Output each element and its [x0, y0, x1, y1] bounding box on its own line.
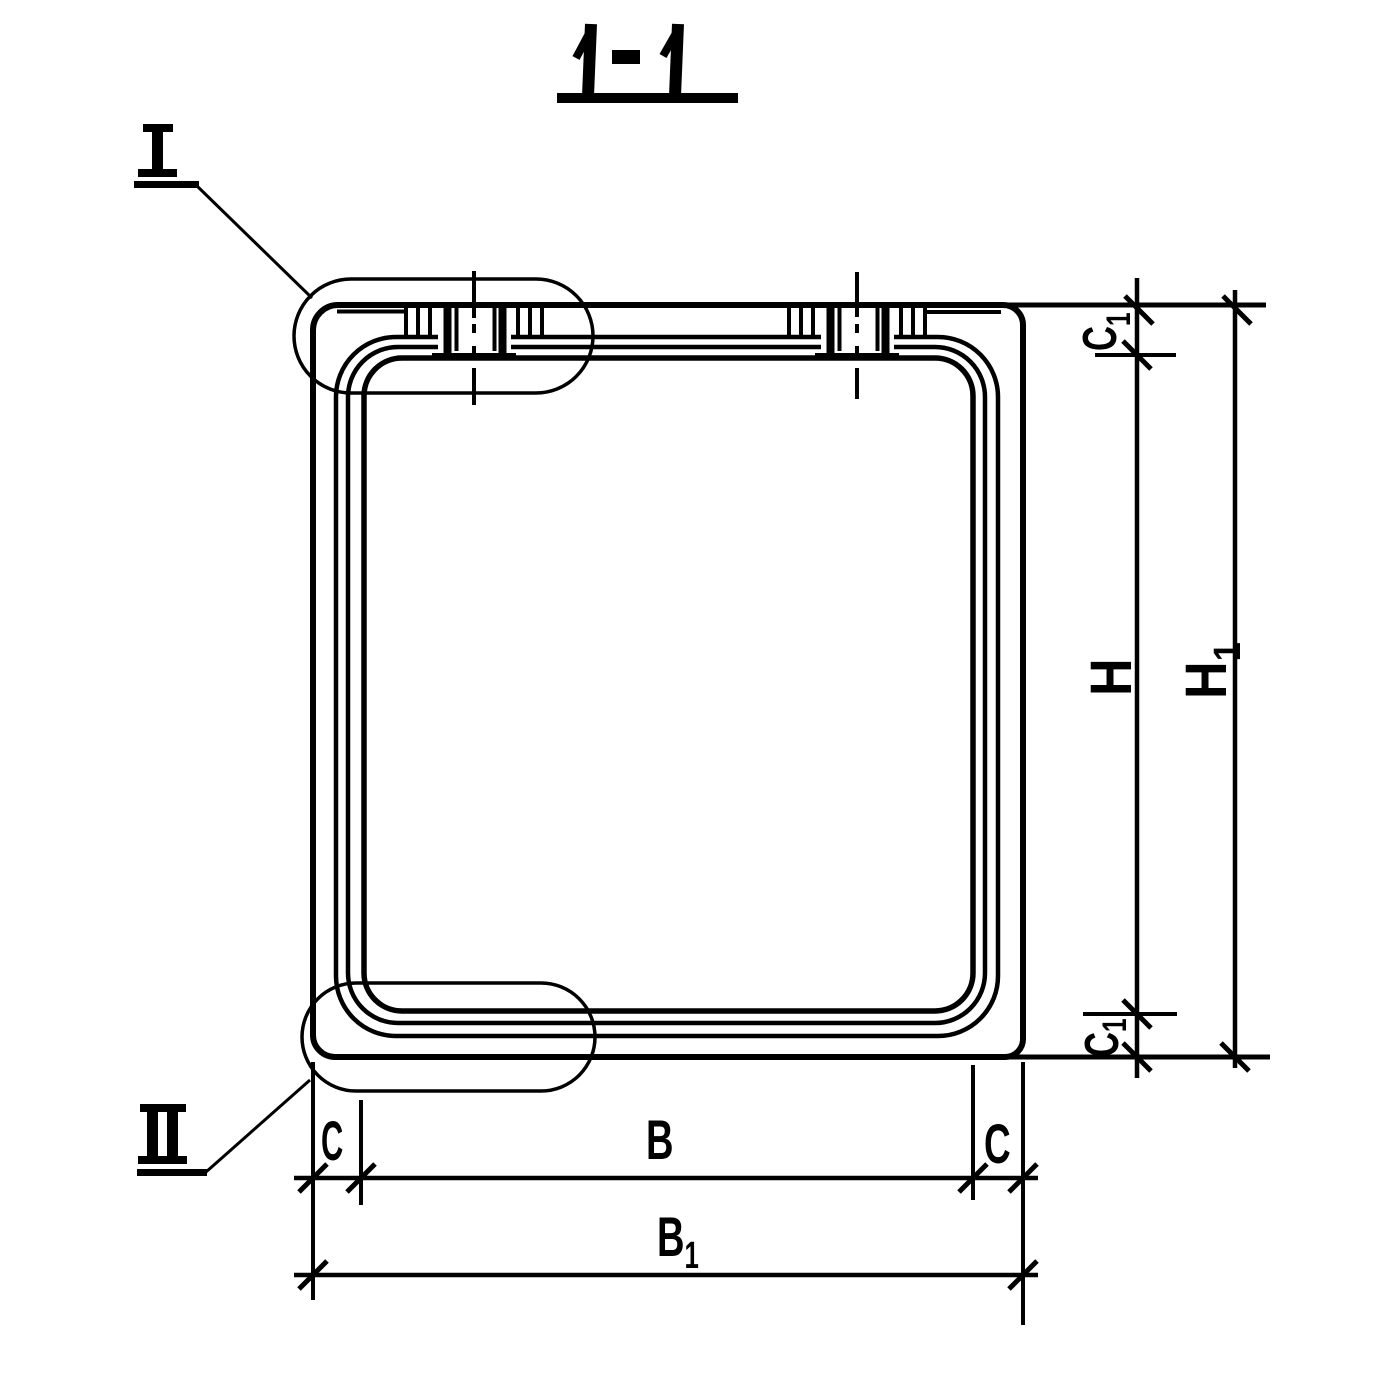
- svg-text:B: B: [646, 1110, 673, 1172]
- svg-text:C: C: [321, 1109, 343, 1172]
- svg-text:H: H: [1078, 658, 1143, 696]
- svg-text:C: C: [984, 1113, 1011, 1176]
